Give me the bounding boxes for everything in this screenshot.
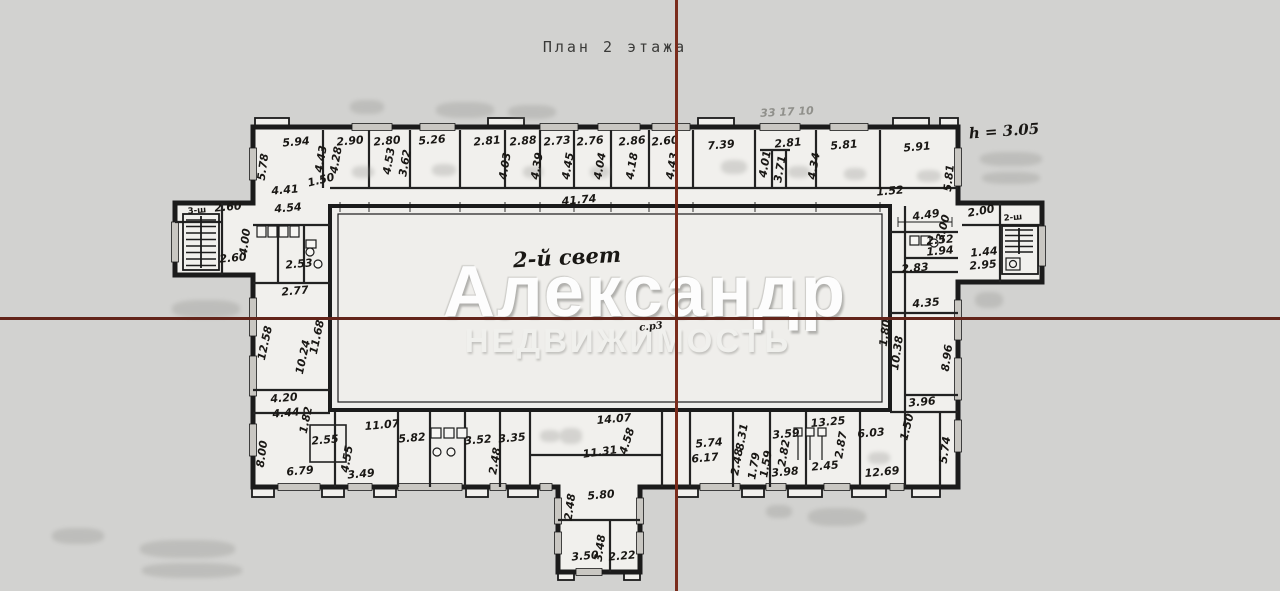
room-label-smudge xyxy=(721,160,747,174)
pencil-smudge xyxy=(982,172,1040,184)
pencil-smudge xyxy=(980,152,1042,166)
pencil-smudge xyxy=(172,300,240,318)
crosshair-horizontal-line xyxy=(0,317,1280,320)
scanned-floor-plan-page: План 2 этажа 5.942.902.805.262.812.882.7… xyxy=(0,0,1280,591)
watermark-agency-type: НЕДВИЖИМОСТЬ xyxy=(465,322,792,360)
pencil-smudge xyxy=(52,528,104,544)
room-label-smudge xyxy=(975,292,1003,308)
room-label-smudge xyxy=(540,430,560,442)
page-title: План 2 этажа xyxy=(543,38,687,56)
room-label-smudge xyxy=(523,166,543,178)
pencil-smudge xyxy=(436,102,494,118)
room-label-smudge xyxy=(868,452,890,464)
pencil-smudge xyxy=(560,428,582,444)
room-label-smudge xyxy=(590,166,610,178)
room-label-smudge xyxy=(352,166,374,178)
pencil-smudge xyxy=(350,100,384,114)
pencil-smudge xyxy=(142,563,242,578)
pencil-smudge xyxy=(766,505,792,518)
pencil-smudge xyxy=(140,540,235,558)
crosshair-vertical-line xyxy=(675,0,678,591)
room-label-smudge xyxy=(788,166,810,178)
room-label-smudge xyxy=(844,168,866,180)
room-label-smudge xyxy=(432,164,456,176)
pencil-smudge xyxy=(808,508,866,526)
watermark-agency-name: Александр xyxy=(443,251,847,333)
pencil-smudge xyxy=(508,105,556,119)
room-label-smudge xyxy=(917,170,941,182)
